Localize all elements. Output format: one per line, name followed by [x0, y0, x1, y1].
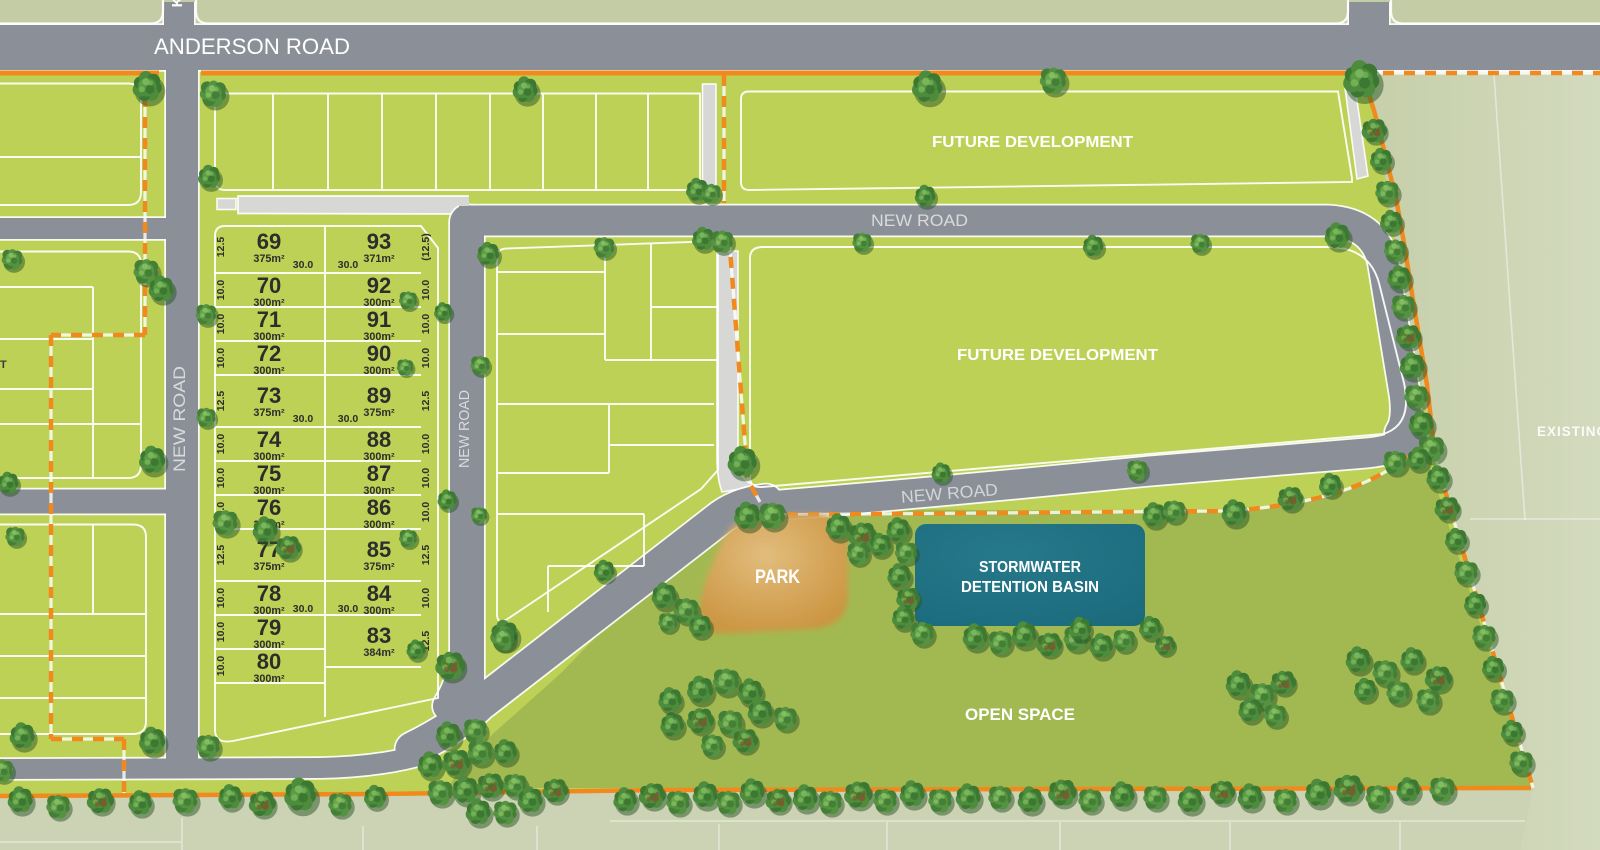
svg-text:10.0: 10.0	[420, 468, 432, 489]
svg-text:30.0: 30.0	[293, 413, 314, 425]
svg-text:10.0: 10.0	[215, 656, 227, 677]
svg-text:30.0: 30.0	[293, 259, 314, 271]
svg-text:375m²: 375m²	[363, 407, 395, 419]
svg-text:10.0: 10.0	[215, 588, 227, 609]
svg-text:10.0: 10.0	[215, 468, 227, 489]
svg-text:86: 86	[367, 495, 391, 520]
svg-text:10.0: 10.0	[420, 280, 432, 301]
svg-text:K: K	[169, 0, 186, 7]
svg-text:FUTURE DEVELOPMENT: FUTURE DEVELOPMENT	[932, 134, 1133, 151]
svg-text:89: 89	[367, 383, 391, 408]
svg-text:12.5: 12.5	[420, 391, 432, 412]
svg-text:375m²: 375m²	[253, 253, 285, 265]
svg-text:10.0: 10.0	[215, 622, 227, 643]
svg-text:71: 71	[257, 307, 281, 332]
svg-text:91: 91	[367, 307, 391, 332]
svg-text:12.5: 12.5	[215, 391, 227, 412]
svg-text:10.0: 10.0	[420, 434, 432, 455]
svg-text:93: 93	[367, 229, 391, 254]
svg-text:300m²: 300m²	[253, 365, 285, 377]
svg-text:69: 69	[257, 229, 281, 254]
svg-text:NEW ROAD: NEW ROAD	[456, 390, 473, 468]
svg-text:30.0: 30.0	[293, 603, 314, 615]
svg-text:375m²: 375m²	[253, 407, 285, 419]
svg-text:10.0: 10.0	[215, 434, 227, 455]
svg-text:10.0: 10.0	[215, 280, 227, 301]
svg-text:12.5: 12.5	[420, 545, 432, 566]
svg-text:10.0: 10.0	[420, 314, 432, 335]
svg-text:30.0: 30.0	[338, 259, 359, 271]
svg-text:30.0: 30.0	[338, 603, 359, 615]
svg-text:300m²: 300m²	[363, 519, 395, 531]
svg-text:384m²: 384m²	[363, 647, 395, 659]
svg-text:88: 88	[367, 427, 391, 452]
svg-text:12.5: 12.5	[215, 545, 227, 566]
svg-text:30.0: 30.0	[338, 413, 359, 425]
svg-text:PARK: PARK	[755, 567, 800, 588]
svg-text:92: 92	[367, 273, 391, 298]
svg-text:84: 84	[367, 581, 392, 606]
svg-text:NEW ROAD: NEW ROAD	[170, 366, 189, 472]
svg-text:ANDERSON ROAD: ANDERSON ROAD	[154, 34, 350, 59]
svg-text:OPEN SPACE: OPEN SPACE	[965, 705, 1075, 724]
svg-text:T: T	[0, 359, 7, 371]
svg-text:76: 76	[257, 495, 281, 520]
svg-text:74: 74	[257, 427, 282, 452]
svg-text:70: 70	[257, 273, 281, 298]
svg-text:75: 75	[257, 461, 281, 486]
svg-text:90: 90	[367, 341, 391, 366]
svg-text:DETENTION BASIN: DETENTION BASIN	[961, 579, 1099, 596]
svg-text:EXISTING: EXISTING	[1537, 424, 1600, 439]
svg-text:375m²: 375m²	[363, 561, 395, 573]
svg-text:10.0: 10.0	[420, 588, 432, 609]
svg-text:(12.5): (12.5)	[420, 233, 432, 260]
svg-text:STORMWATER: STORMWATER	[979, 559, 1081, 576]
svg-text:371m²: 371m²	[363, 253, 395, 265]
svg-text:78: 78	[257, 581, 281, 606]
svg-text:72: 72	[257, 341, 281, 366]
svg-text:375m²: 375m²	[253, 561, 285, 573]
svg-text:80: 80	[257, 649, 281, 674]
svg-text:79: 79	[257, 615, 281, 640]
svg-text:12.5: 12.5	[215, 237, 227, 258]
svg-text:73: 73	[257, 383, 281, 408]
svg-text:300m²: 300m²	[253, 673, 285, 685]
svg-text:87: 87	[367, 461, 391, 486]
svg-text:NEW ROAD: NEW ROAD	[871, 211, 968, 230]
svg-text:83: 83	[367, 623, 391, 648]
svg-text:10.0: 10.0	[215, 348, 227, 369]
svg-text:10.0: 10.0	[420, 348, 432, 369]
svg-text:FUTURE DEVELOPMENT: FUTURE DEVELOPMENT	[957, 347, 1158, 364]
svg-text:85: 85	[367, 537, 391, 562]
svg-text:10.0: 10.0	[420, 502, 432, 523]
svg-text:300m²: 300m²	[363, 605, 395, 617]
svg-text:300m²: 300m²	[363, 365, 395, 377]
